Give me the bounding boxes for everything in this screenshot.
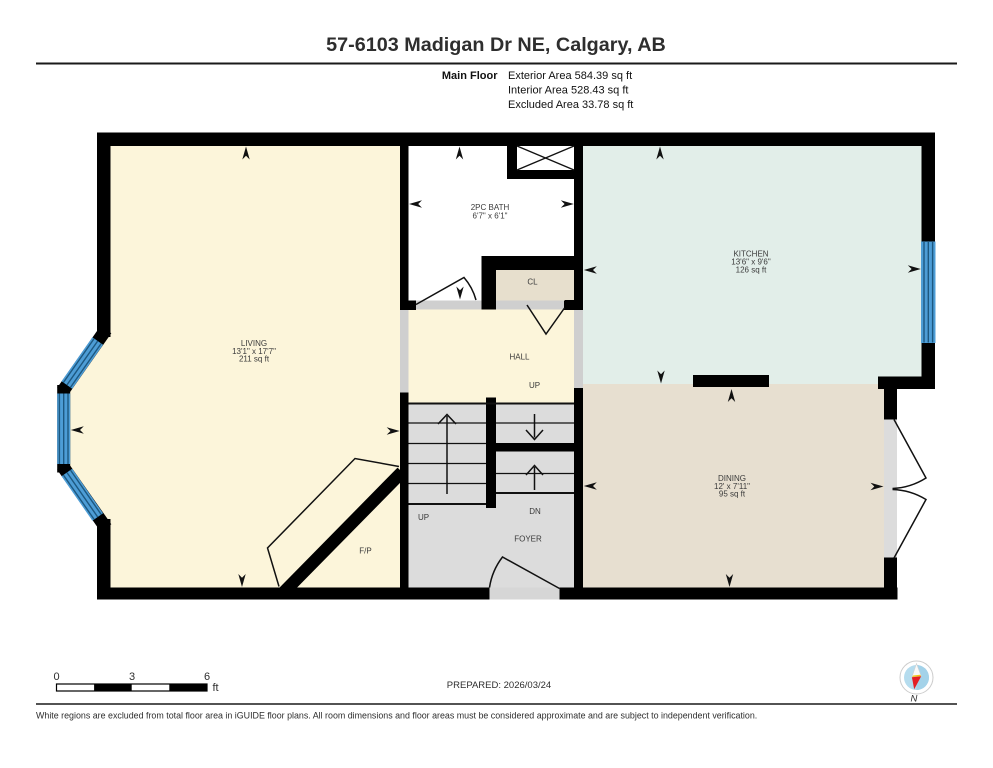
svg-text:FOYER: FOYER bbox=[514, 535, 542, 544]
svg-text:PREPARED: 2026/03/24: PREPARED: 2026/03/24 bbox=[447, 680, 551, 691]
svg-text:DN: DN bbox=[529, 507, 541, 516]
svg-text:UP: UP bbox=[529, 381, 540, 390]
svg-text:Main Floor: Main Floor bbox=[442, 70, 498, 82]
svg-text:Excluded Area 33.78 sq ft: Excluded Area 33.78 sq ft bbox=[508, 99, 633, 111]
svg-text:Interior Area 528.43 sq ft: Interior Area 528.43 sq ft bbox=[508, 85, 628, 97]
svg-text:N: N bbox=[911, 694, 918, 705]
svg-text:White regions are excluded fro: White regions are excluded from total fl… bbox=[36, 711, 757, 721]
svg-text:HALL: HALL bbox=[509, 353, 530, 362]
svg-text:ft: ft bbox=[213, 682, 219, 694]
svg-text:CL: CL bbox=[527, 278, 538, 287]
svg-text:126 sq ft: 126 sq ft bbox=[736, 266, 767, 275]
svg-text:95 sq ft: 95 sq ft bbox=[719, 490, 746, 499]
svg-text:211 sq ft: 211 sq ft bbox=[239, 355, 270, 364]
svg-text:0: 0 bbox=[53, 671, 59, 683]
svg-text:3: 3 bbox=[129, 671, 135, 683]
svg-text:UP: UP bbox=[418, 513, 429, 522]
svg-text:F/P: F/P bbox=[359, 547, 371, 556]
svg-text:6: 6 bbox=[204, 671, 210, 683]
svg-text:Exterior Area 584.39 sq ft: Exterior Area 584.39 sq ft bbox=[508, 70, 632, 82]
svg-text:6'7" x 6'1": 6'7" x 6'1" bbox=[473, 212, 508, 221]
svg-text:57-6103 Madigan Dr NE, Calgary: 57-6103 Madigan Dr NE, Calgary, AB bbox=[326, 34, 666, 56]
